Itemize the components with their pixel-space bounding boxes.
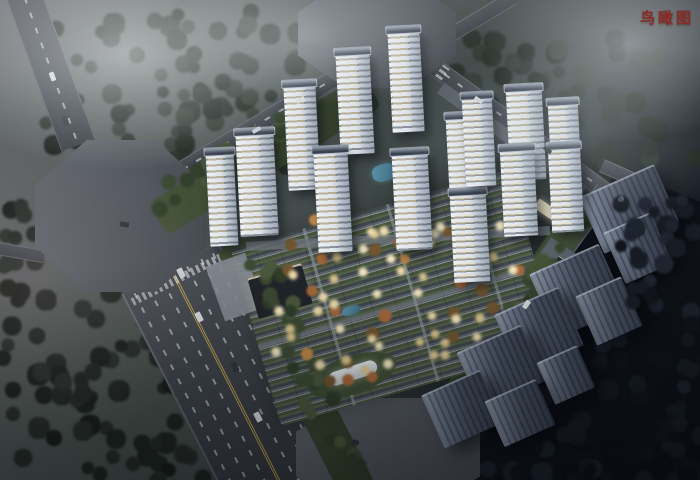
vignette-overlay [0, 0, 700, 480]
aerial-rendering: 鸟瞰图 [0, 0, 700, 480]
image-title: 鸟瞰图 [640, 9, 694, 27]
